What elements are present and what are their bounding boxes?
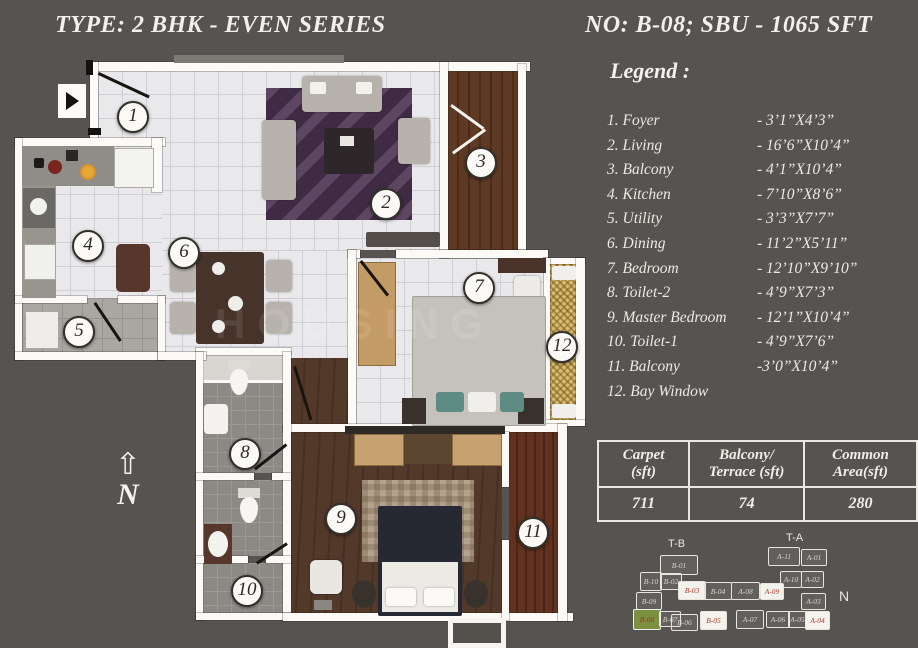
sitemap-unit-A-11: A-11 xyxy=(768,547,800,566)
sitemap-unit-B-04: B-04 xyxy=(704,582,732,600)
legend-room-name: 5. Utility xyxy=(607,210,757,235)
wall-stub xyxy=(88,128,101,135)
fruit-bowl xyxy=(80,164,96,180)
wall xyxy=(283,352,291,620)
legend-room-dimension: -3’0”X10’4” xyxy=(757,358,912,383)
wall xyxy=(348,250,356,432)
wall xyxy=(90,62,530,71)
sofa-pillow xyxy=(356,82,372,94)
legend-item: 1. Foyer- 3’1”X4’3” xyxy=(607,112,912,137)
entry-arrow-icon xyxy=(66,92,79,110)
wall xyxy=(558,424,567,621)
legend-room-dimension: - 12’1”X10’4” xyxy=(757,309,912,334)
nightstand xyxy=(402,398,426,424)
kitchen-appliance xyxy=(66,150,78,161)
legend-list: 1. Foyer- 3’1”X4’3”2. Living- 16’6”X10’4… xyxy=(607,112,912,407)
table-book xyxy=(340,136,354,146)
bay-cushion xyxy=(552,266,576,280)
legend-room-name: 2. Living xyxy=(607,137,757,162)
kitchen-stool xyxy=(116,244,150,292)
wall xyxy=(440,62,448,258)
sitemap-unit-A-06: A-06 xyxy=(766,611,790,628)
sitemap-unit-B-03: B-03 xyxy=(678,581,706,600)
legend-heading: Legend : xyxy=(610,58,690,84)
exterior-ledge xyxy=(174,55,344,63)
wall xyxy=(196,473,254,480)
legend-room-dimension xyxy=(757,383,912,408)
floorplan-page: TYPE: 2 BHK - EVEN SERIES NO: B-08; SBU … xyxy=(0,0,918,648)
legend-room-dimension: - 3’1”X4’3” xyxy=(757,112,912,137)
sitemap-unit-A-07: A-07 xyxy=(736,610,764,629)
wardrobe xyxy=(358,262,396,366)
sitemap-unit-B-10: B-10 xyxy=(640,572,662,591)
dining-chair xyxy=(266,302,292,334)
vanity-basin xyxy=(208,531,228,557)
legend-room-name: 8. Toilet-2 xyxy=(607,284,757,309)
coffee-table xyxy=(324,128,374,174)
fridge xyxy=(114,148,154,188)
room-number-badge-10: 10 xyxy=(231,575,263,607)
side-table xyxy=(352,580,376,608)
area-table: Carpet (sft) Balcony/ Terrace (sft) Comm… xyxy=(597,440,918,522)
wall xyxy=(396,250,548,258)
sitemap-unit-B-01: B-01 xyxy=(660,555,698,575)
master-wardrobe xyxy=(452,434,502,466)
sitemap-unit-A-09: A-09 xyxy=(760,583,784,600)
tv-console xyxy=(366,232,440,247)
wall xyxy=(196,613,291,620)
legend-item: 9. Master Bedroom- 12’1”X10’4” xyxy=(607,309,912,334)
wall xyxy=(266,556,291,563)
legend-room-dimension: - 11’2”X5’11” xyxy=(757,235,912,260)
legend-room-name: 4. Kitchen xyxy=(607,186,757,211)
room-number-badge-9: 9 xyxy=(325,503,357,535)
sitemap-unit-B-08: B-08 xyxy=(633,609,661,630)
legend-room-dimension: - 4’9”X7’6” xyxy=(757,333,912,358)
sofa xyxy=(262,120,296,200)
legend-item: 11. Balcony-3’0”X10’4” xyxy=(607,358,912,383)
table-value-common: 280 xyxy=(804,487,917,521)
master-wardrobe xyxy=(354,434,404,466)
legend-room-name: 10. Toilet-1 xyxy=(607,333,757,358)
tray-table xyxy=(314,600,332,610)
legend-room-name: 1. Foyer xyxy=(607,112,757,137)
washing-machine xyxy=(24,244,56,280)
sitemap-unit-B-05: B-05 xyxy=(700,611,727,630)
legend-item: 10. Toilet-1- 4’9”X7’6” xyxy=(607,333,912,358)
legend-room-dimension: - 16’6”X10’4” xyxy=(757,137,912,162)
utility-unit xyxy=(26,312,58,348)
wall xyxy=(272,473,291,480)
sitemap-unit-A-04: A-04 xyxy=(805,611,830,630)
legend-room-name: 12. Bay Window xyxy=(607,383,757,408)
room-number-badge-2: 2 xyxy=(370,188,402,220)
legend-room-dimension: - 4’1”X10’4” xyxy=(757,161,912,186)
sitemap-unit-A-02: A-02 xyxy=(801,571,824,588)
legend-item: 7. Bedroom- 12’10”X9’10” xyxy=(607,260,912,285)
room-number-badge-4: 4 xyxy=(72,230,104,262)
north-arrow-icon: ⇧ xyxy=(104,450,152,480)
sitemap-unit-A-08: A-08 xyxy=(731,582,760,600)
bed-pillow xyxy=(468,392,496,412)
legend-item: 8. Toilet-2- 4’9”X7’3” xyxy=(607,284,912,309)
wall xyxy=(518,64,526,258)
legend-item: 6. Dining- 11’2”X5’11” xyxy=(607,235,912,260)
legend-room-dimension: - 12’10”X9’10” xyxy=(757,260,912,285)
legend-item: 4. Kitchen- 7’10”X8’6” xyxy=(607,186,912,211)
room-number-badge-6: 6 xyxy=(168,237,200,269)
site-map: T-B T-A B-01B-10B-02B-09B-03B-04A-08B-08… xyxy=(625,530,875,646)
master-pillow xyxy=(386,588,416,606)
tower-label-ta: T-A xyxy=(786,532,803,544)
wall xyxy=(196,348,291,355)
legend-room-name: 7. Bedroom xyxy=(607,260,757,285)
sitemap-north-letter: N xyxy=(839,588,849,604)
room-number-badge-11: 11 xyxy=(517,517,549,549)
wash-basin xyxy=(204,404,228,434)
sitemap-unit-B-06: B-06 xyxy=(671,614,698,631)
legend-room-dimension: - 4’9”X7’3” xyxy=(757,284,912,309)
legend-item: 5. Utility- 3’3”X7’7” xyxy=(607,210,912,235)
wall xyxy=(15,138,22,360)
bed-pillow xyxy=(500,392,524,412)
bay-cushion xyxy=(552,404,576,418)
wall xyxy=(502,540,509,620)
sofa-pillow xyxy=(310,82,326,94)
plate xyxy=(212,262,225,275)
legend-room-name: 11. Balcony xyxy=(607,358,757,383)
legend-item: 3. Balcony- 4’1”X10’4” xyxy=(607,161,912,186)
legend-item: 2. Living- 16’6”X10’4” xyxy=(607,137,912,162)
room-number-badge-3: 3 xyxy=(465,147,497,179)
master-dresser xyxy=(404,434,452,464)
room-number-badge-7: 7 xyxy=(463,272,495,304)
dining-chair xyxy=(170,302,196,334)
legend-room-name: 6. Dining xyxy=(607,235,757,260)
stove-burner xyxy=(48,160,62,174)
entrance-marker xyxy=(58,84,86,118)
room-number-badge-1: 1 xyxy=(117,101,149,133)
table-header-balcony: Balcony/ Terrace (sft) xyxy=(689,441,804,487)
dining-chair xyxy=(266,260,292,292)
sitemap-unit-A-03: A-03 xyxy=(801,593,826,610)
wardrobe-back xyxy=(345,426,505,434)
legend-room-dimension: - 7’10”X8’6” xyxy=(757,186,912,211)
room-number-badge-8: 8 xyxy=(229,438,261,470)
legend-room-name: 3. Balcony xyxy=(607,161,757,186)
north-indicator: ⇧ N xyxy=(104,450,152,510)
legend-room-dimension: - 3’3”X7’7” xyxy=(757,210,912,235)
sitemap-unit-A-01: A-01 xyxy=(801,549,827,566)
tower-label-tb: T-B xyxy=(668,538,685,550)
wall xyxy=(15,138,165,146)
wall xyxy=(15,352,165,360)
master-pillow xyxy=(424,588,454,606)
bed-pillow xyxy=(436,392,464,412)
wall-stub xyxy=(86,60,93,75)
side-table xyxy=(464,580,488,608)
armchair xyxy=(398,118,430,164)
table-value-carpet: 711 xyxy=(598,487,689,521)
plate xyxy=(212,320,225,333)
legend-room-name: 9. Master Bedroom xyxy=(607,309,757,334)
wall xyxy=(158,296,165,360)
wall xyxy=(196,352,203,620)
desk xyxy=(498,258,546,273)
sitemap-unit-B-09: B-09 xyxy=(636,592,662,610)
wall xyxy=(502,432,509,487)
table-header-common: Common Area(sft) xyxy=(804,441,917,487)
sink-bowl xyxy=(30,198,47,215)
table-header-carpet: Carpet (sft) xyxy=(598,441,689,487)
north-letter: N xyxy=(104,480,152,510)
bottom-duct xyxy=(448,618,506,648)
kitchen-pot xyxy=(34,158,44,168)
table-value-balcony: 74 xyxy=(689,487,804,521)
room-number-badge-12: 12 xyxy=(546,331,578,363)
master-armchair xyxy=(310,560,342,594)
plate xyxy=(228,296,243,311)
legend-item: 12. Bay Window xyxy=(607,383,912,408)
room-number-badge-5: 5 xyxy=(63,316,95,348)
